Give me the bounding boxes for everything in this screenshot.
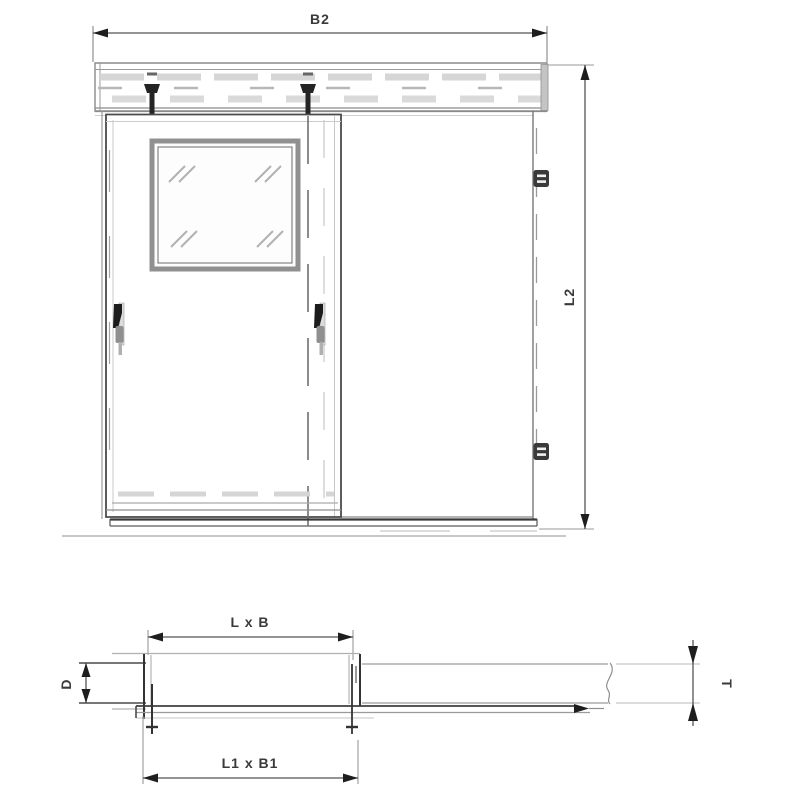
arrowhead-right-icon — [343, 774, 358, 783]
arrowhead-down-icon — [581, 514, 590, 529]
clamp-slit — [537, 448, 546, 451]
wall-clamp-top — [534, 170, 550, 187]
arrowhead-up-icon — [688, 703, 698, 721]
wall-section — [112, 654, 612, 720]
t-dimension: T — [616, 640, 735, 726]
track-assembly — [95, 63, 548, 116]
window-frame — [152, 141, 298, 269]
wall-panel — [341, 111, 537, 519]
d-label: D — [58, 678, 74, 689]
t-label: T — [719, 679, 735, 689]
b2-label: B2 — [310, 11, 330, 27]
break-line — [607, 663, 613, 704]
roller-pin-icon — [147, 73, 157, 76]
handle-grip — [116, 326, 124, 343]
track-right-cap — [541, 65, 548, 111]
l2-label: L2 — [561, 288, 577, 306]
plan-section-view: L x B D — [58, 614, 735, 784]
arrowhead-up-icon — [82, 663, 91, 677]
arrowhead-left-icon — [93, 29, 108, 38]
arrowhead-down-icon — [688, 646, 698, 664]
technical-drawing-sliding-door: B2 — [0, 0, 800, 797]
d-dimension: D — [58, 663, 146, 703]
b2-dimension: B2 — [93, 11, 547, 62]
clamp-slit — [537, 175, 546, 178]
arrowhead-left-icon — [148, 633, 163, 642]
arrowhead-right-icon — [532, 29, 547, 38]
drawing-canvas: B2 — [0, 0, 800, 797]
leaf-section — [136, 664, 604, 734]
handle-grip — [317, 326, 325, 343]
handle-tail — [320, 342, 324, 355]
arrowhead-left-icon — [143, 774, 158, 783]
handle-tail — [119, 342, 123, 355]
guide-bolt-right — [346, 664, 358, 734]
elevation-view: B2 — [62, 11, 594, 536]
threshold — [110, 519, 537, 531]
arrowhead-down-icon — [82, 689, 91, 703]
roller-pin-icon — [303, 73, 313, 76]
arrowhead-right-icon — [338, 633, 353, 642]
clamp-body-icon — [534, 170, 550, 187]
wall-clamp-bottom — [534, 443, 550, 460]
clamp-slit — [537, 453, 546, 456]
guide-bolt-left — [146, 684, 158, 734]
l1xb1-dimension: L1 x B1 — [143, 716, 358, 784]
arrowhead-up-icon — [581, 65, 590, 80]
clamp-body-icon — [534, 443, 550, 460]
clamp-slit — [537, 180, 546, 183]
l1xb1-label: L1 x B1 — [222, 755, 279, 771]
window — [152, 141, 298, 269]
leaf-end-arrow-icon — [574, 704, 589, 713]
lxb-label: L x B — [231, 614, 270, 630]
